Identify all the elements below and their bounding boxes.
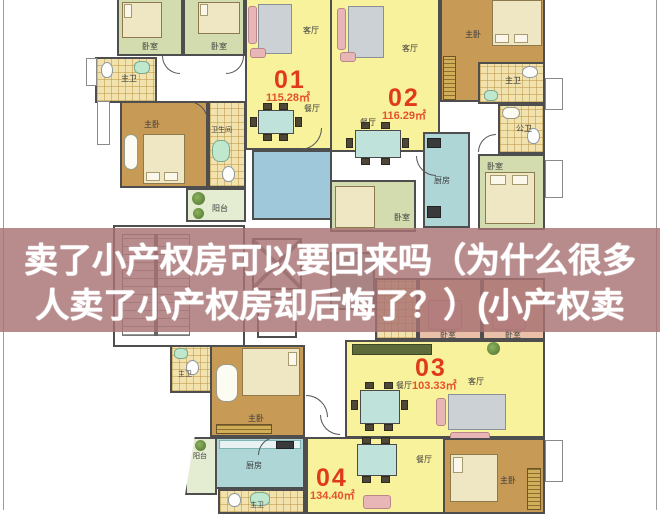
sofa <box>363 495 391 509</box>
title-line-2: 人卖了小产权房却后悔了？）(小产权卖 <box>35 284 624 329</box>
bed-pillow <box>288 352 297 366</box>
room-label-bedroom: 卧室 <box>487 162 503 171</box>
bay-window <box>97 101 110 145</box>
dining-table <box>355 130 401 158</box>
tv-cabinet <box>448 394 506 430</box>
tv-cabinet <box>258 4 292 54</box>
dining-table <box>357 444 397 476</box>
wardrobe <box>216 424 272 434</box>
room-label-master-bath: 主卫 <box>121 74 137 83</box>
wardrobe <box>443 56 456 100</box>
chair <box>401 400 408 410</box>
chair <box>381 158 390 165</box>
room-blue-garden <box>252 150 332 220</box>
chair <box>263 103 272 110</box>
bay-window <box>545 160 563 198</box>
plant <box>192 192 205 205</box>
sofa <box>436 398 446 426</box>
door-arc <box>416 156 436 176</box>
room-label-living: 客厅 <box>303 26 319 35</box>
sink <box>484 90 498 101</box>
room-label-master-bedroom: 主卧 <box>144 120 160 129</box>
chair <box>381 122 390 129</box>
chair <box>295 117 302 127</box>
dining-table <box>360 390 400 424</box>
bay-window <box>545 78 563 110</box>
plant <box>487 342 500 355</box>
door-arc <box>306 395 328 417</box>
room-label-master-bedroom: 主卧 <box>465 30 481 39</box>
chair <box>351 400 358 410</box>
chair <box>346 138 353 148</box>
bed-pillow <box>200 4 208 16</box>
room-label-dining: 餐厅 <box>304 104 320 113</box>
room-label-master-bath: 主卫 <box>250 501 264 510</box>
room-label-bedroom: 卧室 <box>394 213 410 222</box>
title-overlay: 卖了小产权房可以要回来吗（为什么很多 人卖了小产权房却后悔了？）(小产权卖 <box>0 228 660 332</box>
room-label-living: 客厅 <box>402 44 418 53</box>
bed-pillow <box>514 34 528 43</box>
room-label-balcony: 阳台 <box>212 204 228 213</box>
title-line-1: 卖了小产权房可以要回来吗（为什么很多 <box>24 239 636 284</box>
room-label-master-bedroom: 主卧 <box>500 476 516 485</box>
sofa <box>248 6 257 44</box>
room-label-master-bedroom: 主卧 <box>248 414 264 423</box>
unit-04-area: 134.40㎡ <box>310 490 355 502</box>
chair <box>384 424 393 431</box>
room-label-public-bath: 公卫 <box>516 124 532 133</box>
toilet <box>228 493 241 507</box>
door-arc <box>162 56 180 74</box>
stove <box>427 206 441 218</box>
room-label-balcony: 阳台 <box>193 452 207 461</box>
shower <box>212 140 230 162</box>
room-label-bedroom: 卧室 <box>142 42 158 51</box>
chair <box>279 134 288 141</box>
door-arc <box>478 134 496 152</box>
chair <box>381 476 390 483</box>
sink <box>134 61 150 74</box>
tv-cabinet <box>348 6 384 58</box>
sofa <box>340 52 356 62</box>
room-label-dining: 餐厅 <box>396 381 412 390</box>
chair <box>263 134 272 141</box>
bathtub <box>124 134 138 170</box>
dining-table <box>258 110 294 134</box>
unit-02-number: 02 <box>388 86 420 111</box>
unit-03-area: 103.33㎡ <box>412 380 457 392</box>
chair <box>365 382 374 389</box>
bay-window <box>86 58 97 86</box>
chair <box>384 382 393 389</box>
unit-04-number: 04 <box>316 466 348 491</box>
room-label-dining: 餐厅 <box>360 118 376 127</box>
door-arc <box>320 415 340 435</box>
room-label-master-bath: 主卫 <box>178 370 192 379</box>
room-label-kitchen: 厨房 <box>434 176 450 185</box>
toilet <box>222 166 235 182</box>
room-label-dining: 餐厅 <box>416 455 432 464</box>
unit-01-area: 115.28㎡ <box>266 92 310 104</box>
page: { "overlay": { "line1": "卖了小产权房可以要回来吗（为什… <box>0 0 660 510</box>
chair <box>362 476 371 483</box>
room-label-living: 客厅 <box>468 377 484 386</box>
bed-pillow <box>490 175 506 185</box>
room-label-bathroom: 卫生间 <box>211 126 232 135</box>
bay-window <box>545 440 563 482</box>
bed-pillow <box>146 172 160 181</box>
bed-pillow <box>453 457 463 473</box>
bed-pillow <box>512 175 528 185</box>
room-label-master-bath: 主卫 <box>505 76 521 85</box>
chair <box>381 437 390 444</box>
chair <box>402 138 409 148</box>
unit-03-number: 03 <box>415 356 447 381</box>
bed <box>335 186 375 228</box>
stove <box>276 441 294 449</box>
room-label-bedroom: 卧室 <box>211 42 227 51</box>
unit-02-area: 116.29㎡ <box>382 110 426 122</box>
sofa <box>337 8 346 50</box>
bed-pillow <box>164 172 178 181</box>
bed-pillow <box>124 4 132 18</box>
chair <box>362 437 371 444</box>
room-label-kitchen: 厨房 <box>246 461 262 470</box>
stove <box>427 138 441 148</box>
plant <box>193 208 204 219</box>
sink <box>502 107 520 119</box>
sink <box>174 348 188 359</box>
chair <box>250 117 257 127</box>
bathtub <box>216 364 238 402</box>
chair <box>365 424 374 431</box>
unit-01-number: 01 <box>274 68 306 93</box>
sofa <box>250 48 266 58</box>
plant <box>195 440 206 451</box>
wardrobe <box>527 468 541 510</box>
toilet <box>101 62 113 78</box>
chair <box>279 103 288 110</box>
toilet <box>522 66 538 78</box>
door-arc <box>226 56 244 74</box>
bed-pillow <box>495 34 509 43</box>
chair <box>361 158 370 165</box>
